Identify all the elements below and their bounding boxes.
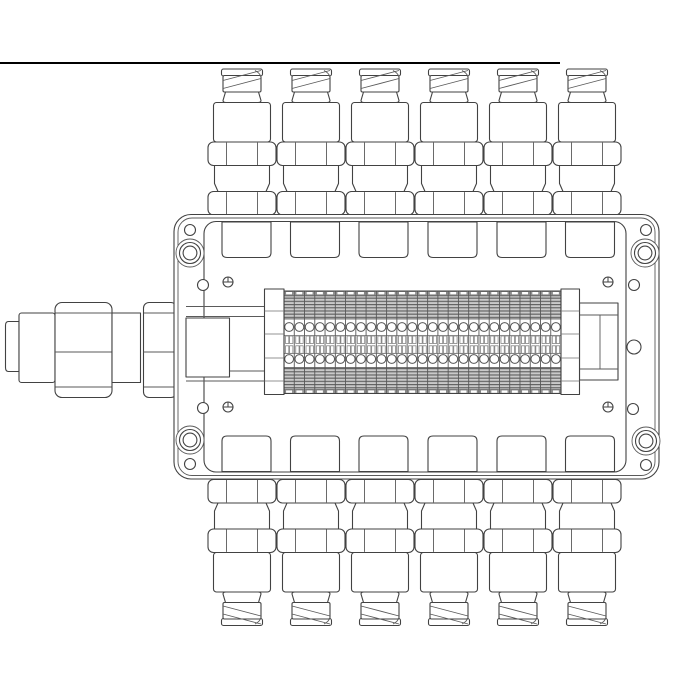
flange-hole bbox=[185, 225, 196, 236]
left-entry-boss bbox=[186, 318, 230, 377]
flange-hole bbox=[641, 460, 652, 471]
top-rule bbox=[0, 62, 560, 64]
connector-neck bbox=[112, 313, 141, 383]
flange-hole bbox=[198, 280, 209, 291]
mid-side-hole bbox=[627, 340, 641, 354]
drawing-canvas bbox=[0, 0, 700, 700]
connector-hex-body bbox=[55, 303, 112, 398]
strip-bottom-hatch-band bbox=[284, 368, 561, 390]
corner-mounting-hole bbox=[176, 239, 204, 267]
terminal-strip bbox=[265, 289, 580, 395]
lid-screw bbox=[223, 277, 233, 287]
flange-hole bbox=[641, 225, 652, 236]
corner-mounting-hole bbox=[176, 426, 204, 454]
connector-hex-nut bbox=[144, 303, 177, 398]
corner-mounting-hole bbox=[631, 239, 659, 267]
entry-hub bbox=[359, 222, 408, 258]
junction-box-technical-drawing bbox=[0, 0, 700, 700]
entry-hub bbox=[497, 222, 546, 258]
flange-hole bbox=[629, 280, 640, 291]
entry-hub bbox=[291, 222, 340, 258]
entry-hub bbox=[222, 436, 271, 472]
flange-hole bbox=[185, 459, 196, 470]
strip-top-hatch-band bbox=[284, 296, 561, 319]
entry-hub bbox=[428, 222, 477, 258]
lid-screw bbox=[603, 277, 613, 287]
entry-hub bbox=[566, 222, 615, 258]
lid-screw bbox=[223, 402, 233, 412]
entry-hub bbox=[428, 436, 477, 472]
flange-hole bbox=[198, 403, 209, 414]
strip-end-bracket-left bbox=[265, 289, 285, 395]
entry-hub bbox=[222, 222, 271, 258]
strip-end-bracket-right bbox=[561, 289, 580, 395]
connector-sleeve bbox=[19, 313, 55, 383]
corner-mounting-hole bbox=[632, 427, 660, 455]
entry-hub bbox=[359, 436, 408, 472]
entry-hub bbox=[497, 436, 546, 472]
connector-end-cap bbox=[6, 322, 20, 372]
flange-hole bbox=[628, 404, 639, 415]
entry-hub bbox=[291, 436, 340, 472]
entry-hub bbox=[566, 436, 615, 472]
lid-screw bbox=[603, 402, 613, 412]
